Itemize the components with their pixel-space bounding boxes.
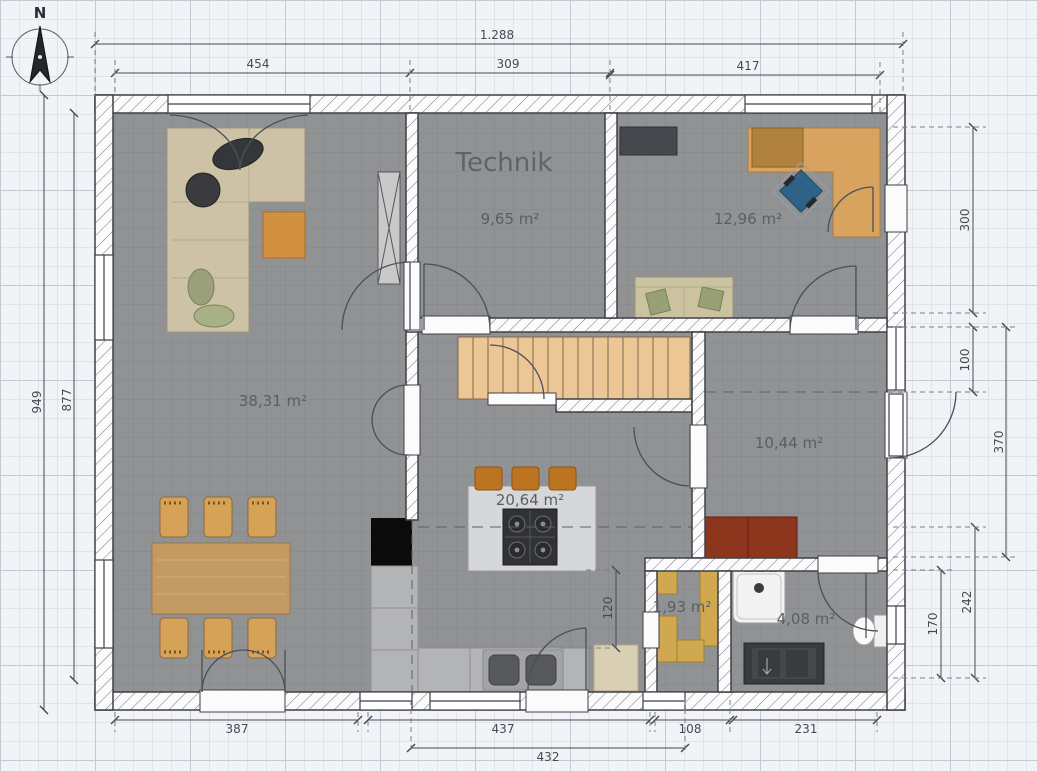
kitchen-counter-bottom[interactable] [418, 648, 588, 692]
dim-right-lower-inner: 170 [926, 594, 940, 654]
dim-bottom-middle: 437 [463, 722, 543, 736]
window-bottom-3 [643, 692, 685, 710]
dim-top-right: 417 [708, 59, 788, 73]
desk-return[interactable] [752, 128, 803, 167]
window-top-living [168, 95, 310, 113]
dim-bottom-small: 108 [650, 722, 730, 736]
window-left-upper [95, 255, 113, 340]
oven-appliance[interactable] [371, 518, 412, 566]
chimney-block[interactable] [378, 172, 400, 284]
staircase[interactable] [458, 337, 690, 399]
dim-bottom-left: 387 [197, 722, 277, 736]
dim-kitchen-passage: 120 [601, 578, 615, 638]
compass [6, 26, 74, 91]
dining-table[interactable] [152, 543, 290, 614]
dim-top-total: 1.288 [457, 28, 537, 42]
dim-left-outer: 949 [30, 372, 44, 432]
window-right-bath [887, 606, 905, 644]
wall-under-stairs [556, 399, 692, 412]
compass-north-label: N [30, 4, 50, 22]
window-left-lower [95, 560, 113, 648]
floor-plan-canvas: N Technik 9,65 m² 12,96 m² 38,31 m² 20,6… [0, 0, 1037, 771]
floor-plan-drawing [0, 0, 1037, 771]
dim-bottom-right: 231 [766, 722, 846, 736]
dim-right-lower: 242 [960, 572, 974, 632]
dim-top-left: 454 [218, 57, 298, 71]
washing-machine[interactable] [744, 643, 824, 684]
bathroom-sink[interactable] [733, 565, 785, 623]
window-bottom-1 [360, 692, 412, 710]
office-sofa[interactable] [635, 277, 733, 323]
coffee-table[interactable] [263, 212, 305, 258]
dim-right-middle: 370 [992, 412, 1006, 472]
dim-right-top: 300 [958, 190, 972, 250]
kitchen-counter-left[interactable] [371, 566, 418, 692]
wall-technik-office [605, 113, 617, 318]
window-bottom-2 [430, 692, 520, 710]
bar-stools[interactable] [475, 467, 576, 490]
dim-right-door: 100 [958, 330, 972, 390]
window-top-office [745, 95, 872, 113]
kitchen-cabinet[interactable] [594, 645, 638, 691]
north-arrow-icon [30, 26, 50, 82]
dim-left-inner: 877 [60, 370, 74, 430]
sideboard[interactable] [620, 127, 677, 155]
door-entrance [889, 392, 956, 458]
dresser[interactable] [700, 517, 797, 563]
window-right-hall [887, 327, 905, 390]
dim-top-middle: 309 [468, 57, 548, 71]
dim-bottom-inner: 432 [508, 750, 588, 764]
wall-storage-bath [718, 571, 731, 692]
cooktop[interactable] [503, 509, 557, 565]
